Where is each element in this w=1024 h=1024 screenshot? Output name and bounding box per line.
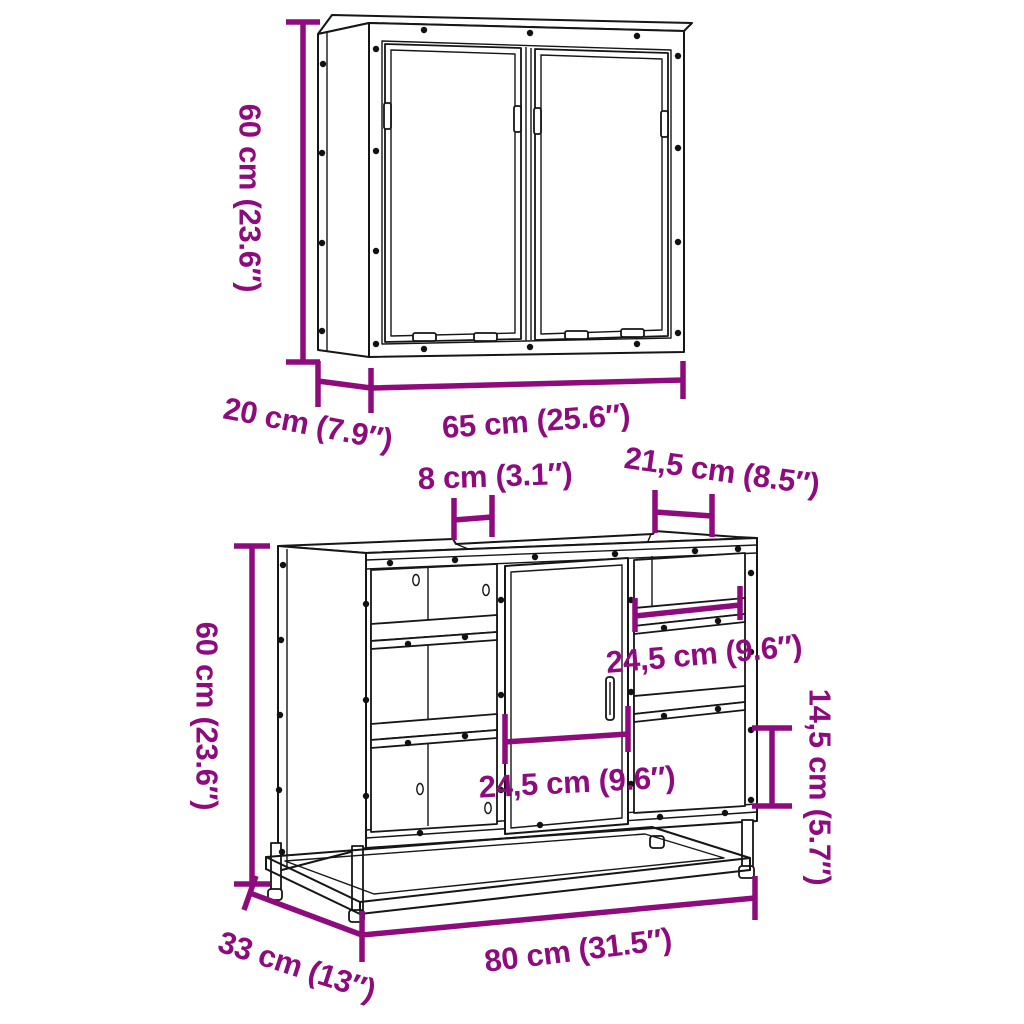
mirror-door-right — [535, 49, 668, 340]
dim-mirror-height: 60 cm (23.6″) — [233, 22, 321, 362]
leg-foot — [739, 866, 754, 878]
mirror-door-left — [385, 44, 521, 342]
mirror-cabinet-side-panel — [318, 23, 369, 357]
dim-sink-recess: 8 cm (3.1″) — [417, 456, 573, 540]
dim-sink-top-right: 21,5 cm (8.5″) — [622, 440, 822, 537]
product-dimension-diagram: 60 cm (23.6″) 20 cm (7.9″) 65 cm (25.6″)… — [0, 0, 1024, 1024]
dim-mirror-width: 65 cm (25.6″) — [371, 361, 683, 445]
door-bottom-tab — [621, 329, 644, 337]
door-hinge-icon — [661, 111, 668, 137]
dim-sink-width-label: 80 cm (31.5″) — [482, 921, 673, 979]
door-hinge-icon — [534, 108, 541, 134]
dim-sink-recess-label: 8 cm (3.1″) — [417, 456, 573, 496]
dim-mirror-width-label: 65 cm (25.6″) — [441, 397, 631, 445]
dim-sink-shelf-height-label: 14,5 cm (5.7″) — [803, 689, 838, 886]
dim-sink-depth-label: 33 cm (13″) — [214, 924, 380, 1008]
diagram-svg: 60 cm (23.6″) 20 cm (7.9″) 65 cm (25.6″)… — [0, 0, 1024, 1024]
dim-sink-height: 60 cm (23.6″) — [190, 546, 271, 884]
dim-mirror-depth: 20 cm (7.9″) — [220, 361, 395, 458]
sink-cabinet-side-panel — [278, 546, 366, 871]
door-hinge-icon — [384, 103, 391, 129]
door-hinge-icon — [514, 106, 521, 132]
dim-sink-height-label: 60 cm (23.6″) — [190, 622, 225, 810]
dim-sink-shelf-height: 14,5 cm (5.7″) — [752, 689, 838, 886]
mirror-cabinet-drawing — [318, 15, 692, 357]
dim-sink-top-right-label: 21,5 cm (8.5″) — [622, 440, 822, 502]
door-bottom-tab — [413, 333, 436, 341]
door-bottom-tab — [565, 331, 588, 339]
dim-mirror-height-label: 60 cm (23.6″) — [233, 104, 268, 292]
sink-cabinet-drawing — [266, 531, 757, 922]
door-bottom-tab — [474, 333, 497, 341]
